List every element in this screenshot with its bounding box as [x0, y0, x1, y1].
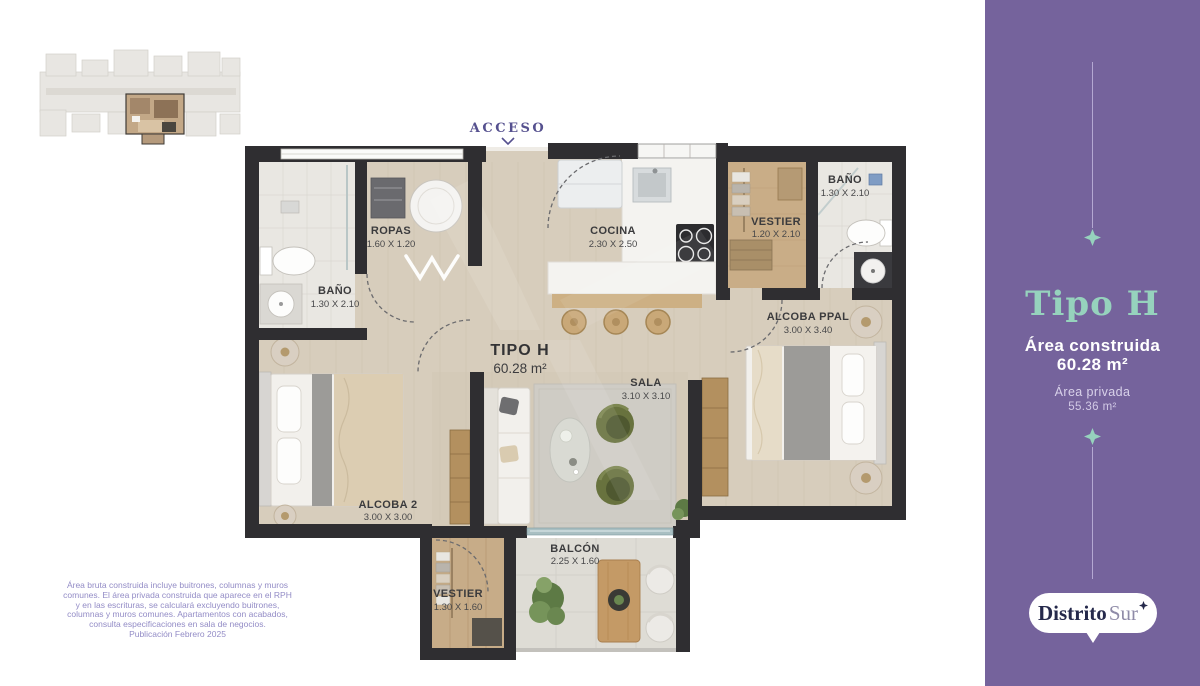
- svg-text:1.30 X 1.60: 1.30 X 1.60: [434, 602, 483, 613]
- built-area-value: 60.28 m²: [985, 355, 1200, 374]
- toilet: [260, 247, 272, 275]
- kitchen-window: [638, 144, 716, 158]
- diamond-ornament-bottom: [1084, 428, 1101, 445]
- svg-text:SALA: SALA: [630, 377, 662, 389]
- svg-text:BAÑO: BAÑO: [828, 173, 862, 186]
- diamond-ornament-top: [1084, 229, 1101, 246]
- pillow: [277, 438, 301, 484]
- svg-text:1.20 X 2.10: 1.20 X 2.10: [752, 229, 801, 240]
- svg-text:VESTIER: VESTIER: [751, 216, 801, 228]
- closet: [702, 378, 728, 496]
- ornament-line-top: [1092, 62, 1093, 228]
- disclaimer-line: Publicación Febrero 2025: [40, 630, 315, 640]
- pillow: [842, 402, 864, 444]
- info-panel: Tipo H Área construida 60.28 m² Área pri…: [985, 0, 1200, 686]
- svg-text:3.10 X 3.10: 3.10 X 3.10: [622, 391, 671, 402]
- floor-plan: BAÑO 1.30 X 2.10 ROPAS 1.60 X 1.20 COCIN…: [235, 118, 950, 668]
- legal-disclaimer: Área bruta construida incluye buitrones,…: [40, 581, 315, 640]
- svg-text:1.30 X 2.10: 1.30 X 2.10: [821, 188, 870, 199]
- balcony-chair: [646, 614, 674, 642]
- svg-text:2.30 X 2.50: 2.30 X 2.50: [589, 239, 638, 250]
- svg-text:ALCOBA PPAL: ALCOBA PPAL: [767, 311, 850, 323]
- private-area-label: Área privada: [985, 385, 1200, 400]
- private-area-value: 55.36 m²: [985, 400, 1200, 415]
- room-label-balcon: BALCÓN 2.25 X 1.60: [550, 542, 599, 567]
- unit-type-title: Tipo H: [985, 284, 1200, 324]
- sofa-back: [484, 388, 498, 524]
- svg-text:COCINA: COCINA: [590, 225, 636, 237]
- private-area-block: Área privada 55.36 m²: [985, 385, 1200, 414]
- logo-bubble-tail: [1086, 632, 1100, 643]
- svg-text:VESTIER: VESTIER: [433, 588, 483, 600]
- svg-text:BALCÓN: BALCÓN: [550, 542, 599, 555]
- cushion: [499, 445, 519, 463]
- building-key-plan: [38, 42, 243, 147]
- laundry-shelf: [371, 178, 405, 218]
- svg-text:ALCOBA 2: ALCOBA 2: [358, 499, 417, 511]
- distritosur-logo: Distrito Sur: [1029, 593, 1157, 633]
- ornament-line-bottom: [1092, 447, 1093, 579]
- built-area-label: Área construida: [985, 336, 1200, 355]
- shoe-rack: [472, 618, 502, 646]
- pillow: [277, 386, 301, 432]
- svg-text:1.30 X 2.10: 1.30 X 2.10: [311, 299, 360, 310]
- page: ACCESO: [0, 0, 1200, 686]
- tile-sample-icon: [869, 174, 882, 185]
- logo-text-secondary: Sur: [1109, 601, 1138, 626]
- logo-text-primary: Distrito: [1038, 601, 1107, 626]
- svg-text:ROPAS: ROPAS: [371, 225, 411, 237]
- highlighted-unit: [126, 94, 184, 144]
- svg-text:TIPO H: TIPO H: [490, 342, 549, 359]
- headboard: [259, 372, 271, 506]
- svg-text:BAÑO: BAÑO: [318, 284, 352, 297]
- balcony-chair: [646, 566, 674, 594]
- svg-text:60.28 m²: 60.28 m²: [493, 361, 547, 376]
- pillow: [842, 354, 864, 396]
- svg-text:3.00 X 3.00: 3.00 X 3.00: [364, 512, 413, 523]
- balcony-railing: [516, 648, 676, 652]
- svg-text:1.60 X 1.20: 1.60 X 1.20: [367, 239, 416, 250]
- svg-text:2.25 X 1.60: 2.25 X 1.60: [551, 556, 600, 567]
- svg-text:3.00 X 3.40: 3.00 X 3.40: [784, 325, 833, 336]
- sparkle-icon: [1139, 601, 1148, 610]
- closet: [450, 430, 470, 524]
- built-area-block: Área construida 60.28 m²: [985, 336, 1200, 374]
